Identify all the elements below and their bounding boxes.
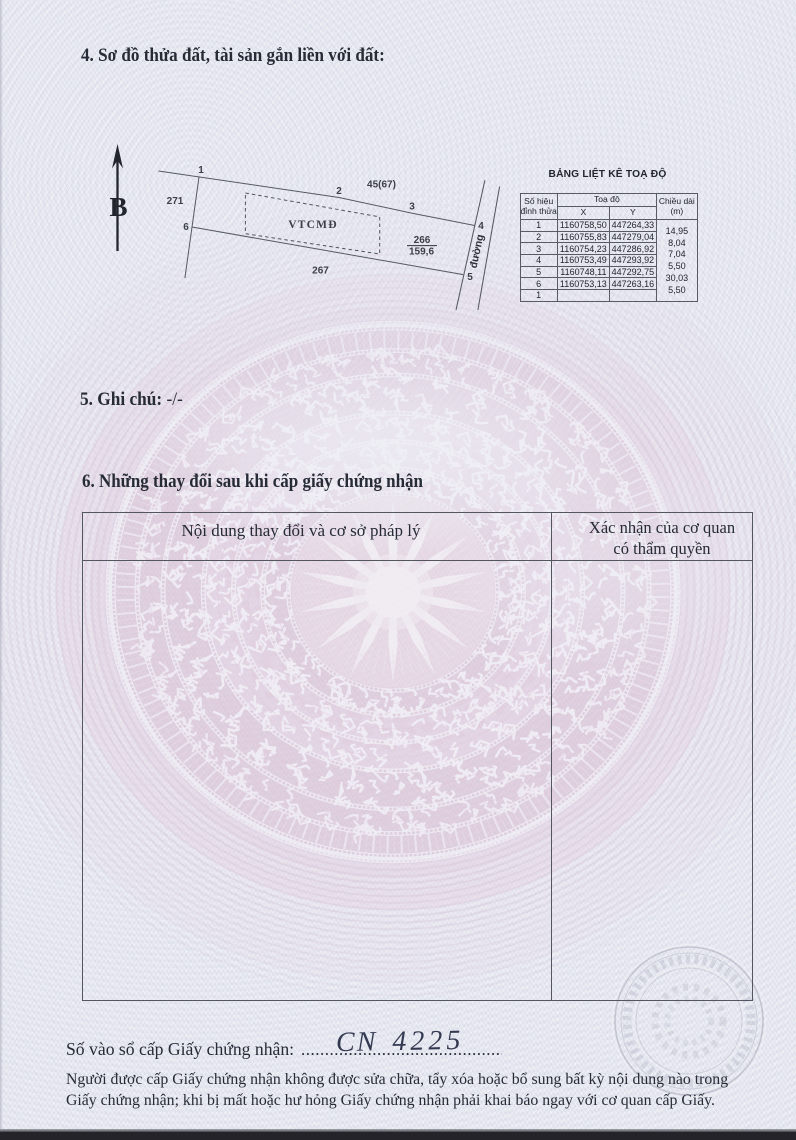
svg-text:266: 266 (414, 235, 431, 246)
svg-text:267: 267 (312, 266, 329, 277)
svg-text:45(67): 45(67) (367, 180, 396, 191)
svg-text:2: 2 (336, 186, 342, 197)
svg-text:B: B (110, 192, 128, 222)
svg-text:VTCMĐ: VTCMĐ (288, 219, 337, 231)
svg-text:5: 5 (467, 272, 473, 283)
svg-text:159,6: 159,6 (409, 247, 434, 258)
svg-text:4: 4 (478, 221, 484, 232)
svg-text:đường: đường (468, 233, 487, 269)
svg-text:6: 6 (183, 222, 189, 233)
svg-text:1: 1 (198, 165, 204, 176)
svg-text:3: 3 (409, 202, 415, 213)
svg-text:271: 271 (167, 196, 184, 207)
